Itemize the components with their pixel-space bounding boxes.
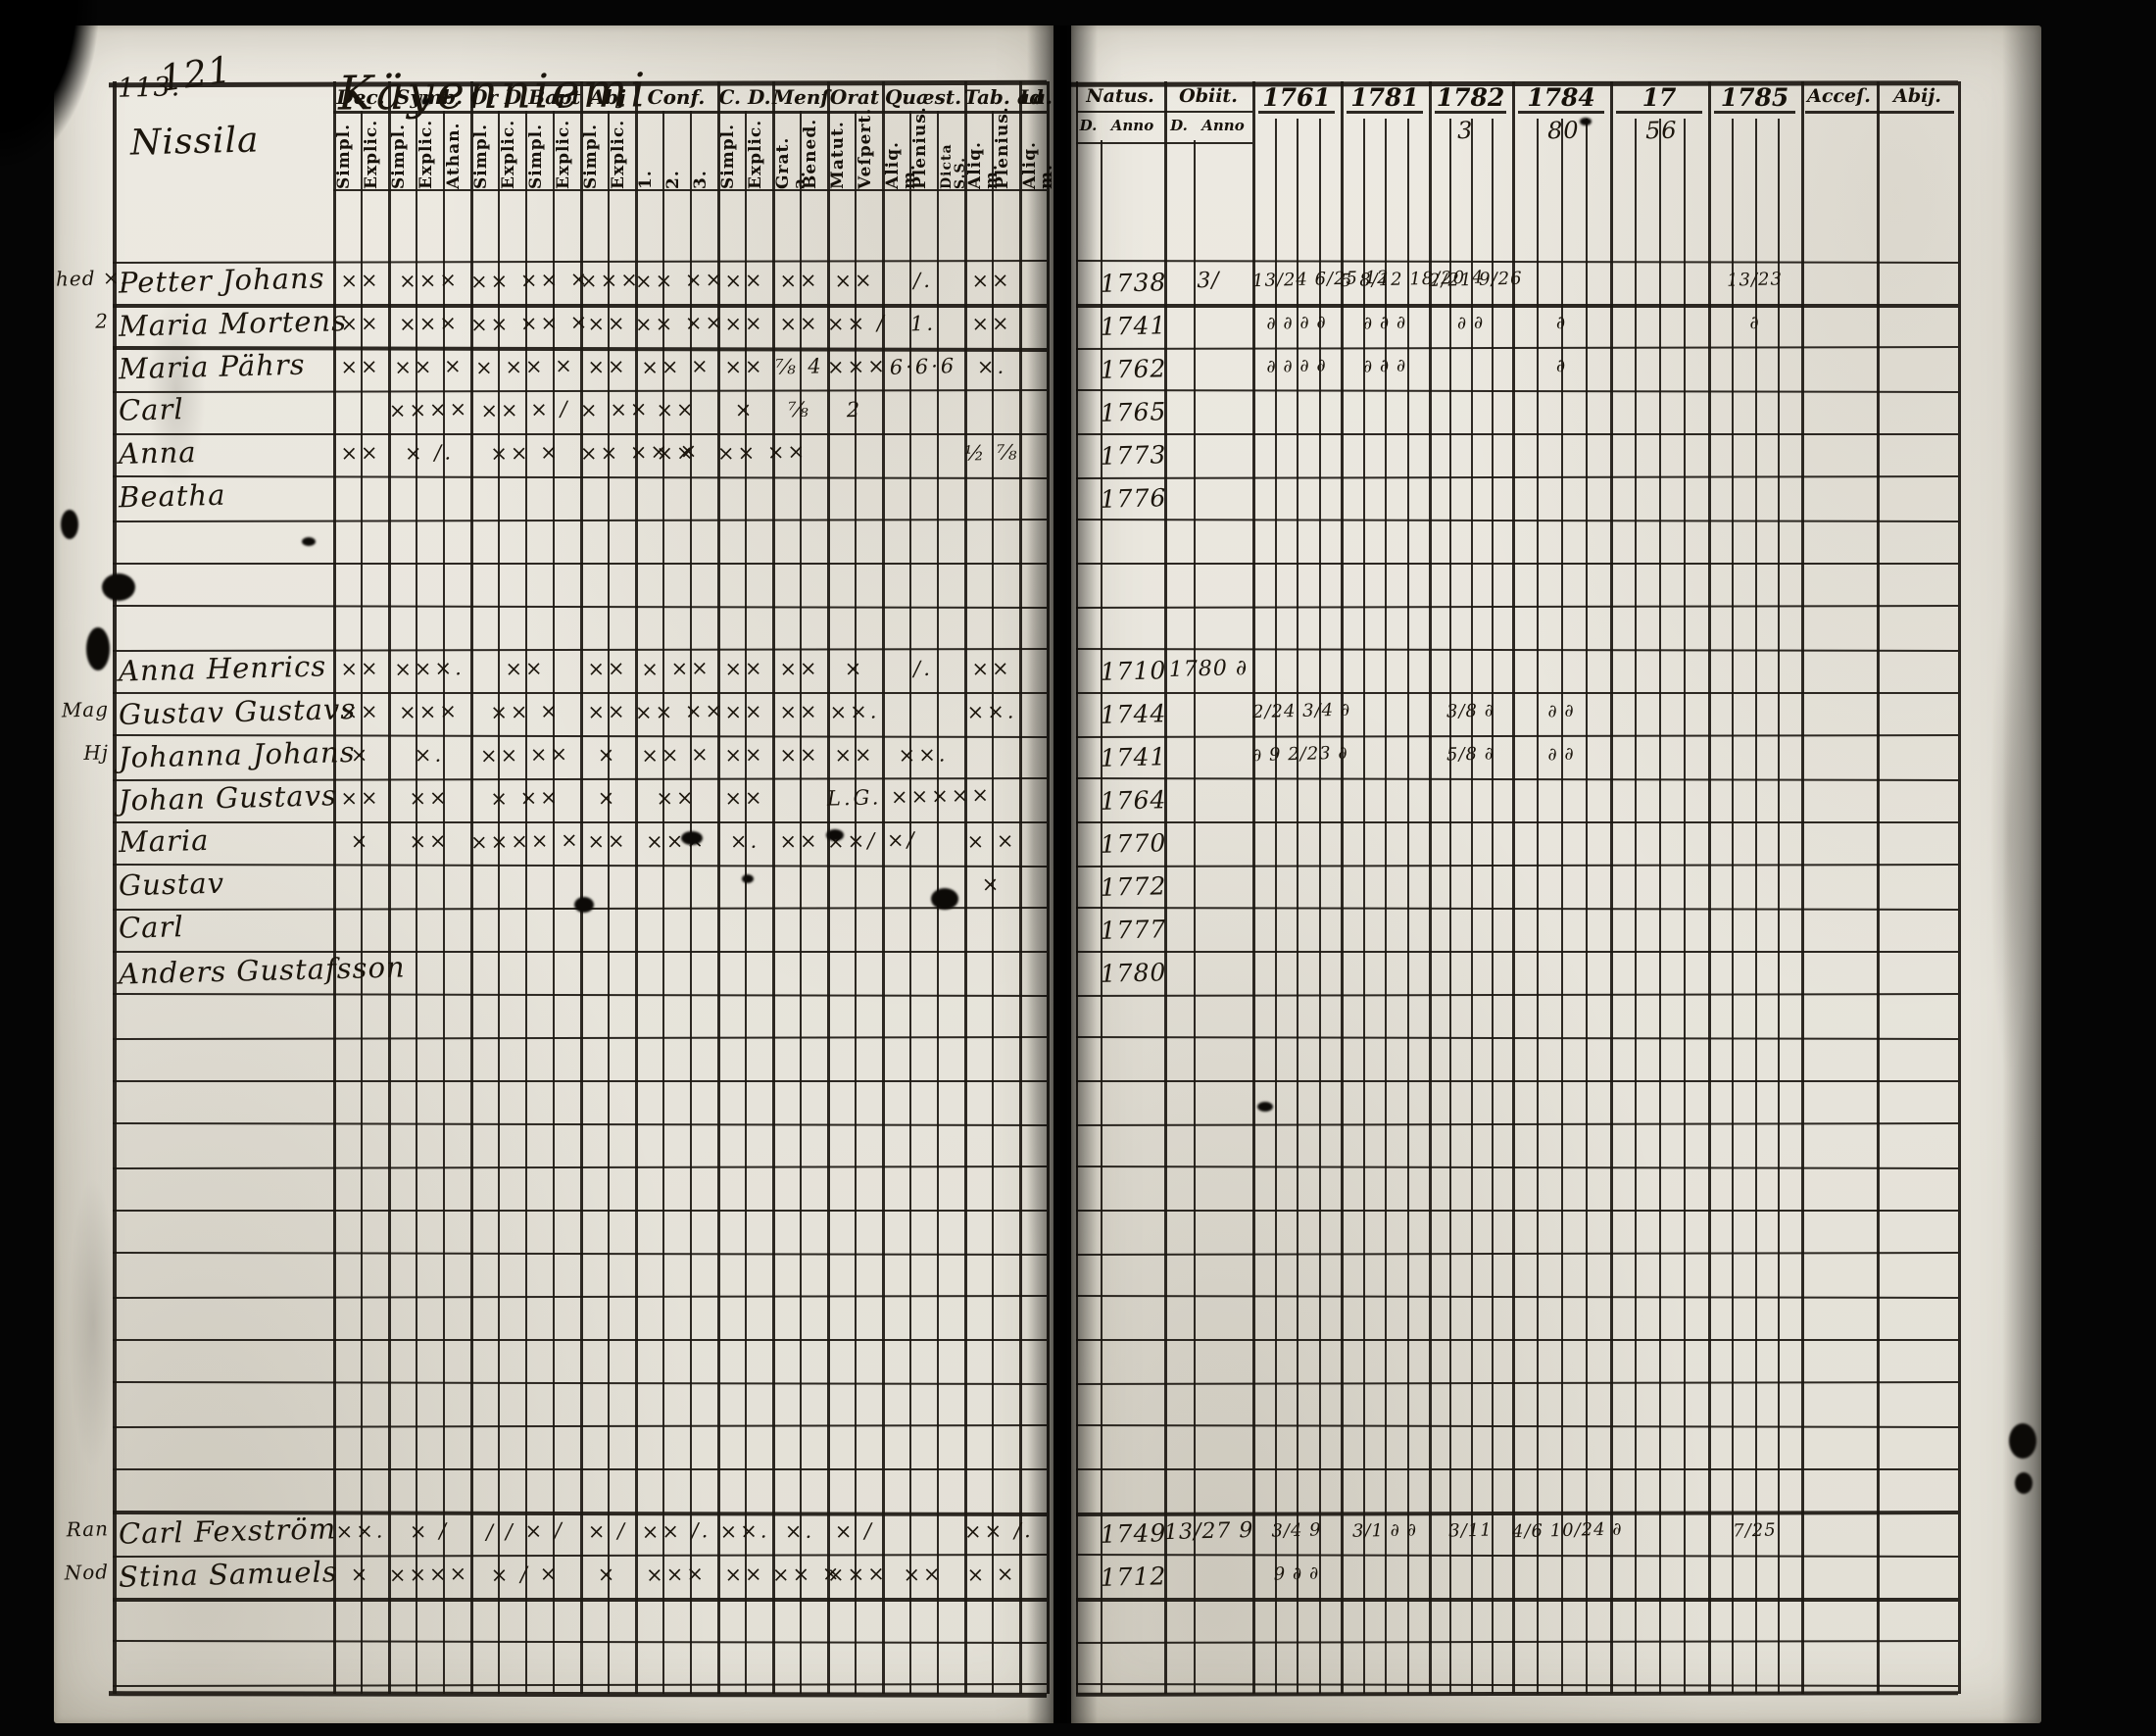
tally-marks: ×× ×× [635, 268, 718, 293]
left-page: 113. 121 Käyenniemi Nissila Dec.Simpl.Ex… [54, 25, 1053, 1723]
tally-marks: ××. [717, 1518, 773, 1543]
tally-marks: × ∕ × [470, 1562, 581, 1588]
communion-mark: ∂ ∂ ∂ ∂ [1252, 355, 1341, 377]
tally-marks: ×× [333, 354, 389, 378]
person-row-right: 174913/27 93/4 93/1 ∂ ∂3/114/6 10/24 ∂7/… [1071, 1512, 1958, 1555]
tally-marks: × [717, 397, 773, 422]
communion-mark: ∂ ∂ ∂ [1341, 355, 1429, 377]
year-annotation: 56 [1645, 117, 1678, 145]
communion-mark: 9 ∂ ∂ [1252, 1562, 1341, 1585]
tally-marks: × ∕. [388, 440, 471, 466]
paper-stain [1019, 392, 1049, 1274]
column-sub-label: Dicta S.S. [940, 115, 961, 189]
ink-blot [302, 537, 316, 546]
row-rule [1076, 1080, 1958, 1082]
person-name: Stina Samuels [119, 1555, 338, 1593]
tally-marks: ×× [717, 699, 773, 723]
day-anno-sub-label: D. [1164, 117, 1194, 134]
ink-blot [1257, 1102, 1273, 1112]
tally-marks: × [827, 656, 883, 680]
person-name: Maria [119, 823, 210, 859]
person-row: RanCarl Fexström××.× ∕∕ ∕ × ∕× ∕×× ∕.××.… [54, 1512, 1047, 1555]
column-sub-label: Simpl. [583, 115, 605, 189]
accessit-underline [1805, 111, 1954, 114]
column-sub-label: Plenius. [995, 115, 1016, 189]
tally-marks: ×× [717, 656, 773, 680]
tally-marks: ×× [772, 828, 828, 853]
natus-year: 1773 [1097, 440, 1171, 471]
column-sub-label: Aliq. m. [967, 115, 989, 189]
ink-blot [1580, 118, 1592, 125]
person-name: Carl Fexström [119, 1512, 337, 1550]
person-name: Gustav Gustavs [119, 692, 357, 731]
person-row: Maria××××××× ×××××××.××××∕ ×∕× × [54, 821, 1047, 865]
ink-blot [2009, 1423, 2036, 1459]
tally-marks: ×× [388, 828, 471, 854]
tally-marks: L.G. ××××× [827, 785, 883, 810]
person-name: Johan Gustavs [119, 778, 338, 817]
person-row: Johan Gustavs××××× ×××××××L.G. ××××× [54, 778, 1047, 821]
tally-marks: × [580, 742, 636, 767]
natus-year: 1762 [1097, 354, 1171, 384]
communion-mark: ∂ 9 2/23 ∂ [1252, 743, 1341, 766]
obiit-header: Obiit. [1164, 85, 1252, 107]
person-row-right: 17383∕13/24 6/25 125 8/12 18/20 42/21 9/… [1071, 261, 1958, 304]
year-column-label: 17 [1610, 83, 1708, 112]
day-anno-sub-label: Anno [1101, 117, 1164, 134]
tally-marks: ×× [580, 311, 636, 335]
tally-marks: ×× [580, 699, 636, 723]
person-row-right: 17129 ∂ ∂ [1071, 1555, 1958, 1598]
tally-marks: ∕ ∕ × ∕ [470, 1518, 581, 1545]
tally-marks: ×× [772, 656, 828, 680]
tally-marks: ××× [635, 1562, 718, 1587]
communion-mark: ∂ ∂ [1512, 700, 1610, 722]
column-group-label: Or D Bapt [470, 85, 580, 109]
row-rule [1076, 1166, 1958, 1169]
row-rule [1076, 1339, 1958, 1341]
tally-marks: ×× [717, 311, 773, 335]
person-row: MagGustav Gustavs××××××× ××××× ××××××××.… [54, 692, 1047, 735]
year-column-label: 1781 [1341, 83, 1429, 112]
row-rule [113, 1598, 1047, 1602]
tally-marks: ×× [717, 354, 773, 378]
natus-year: 1770 [1097, 828, 1171, 859]
tally-marks: ×× [333, 268, 389, 292]
column-sub-label: Matut. [830, 115, 852, 189]
tally-marks: ×× ∕ [827, 311, 883, 335]
natus-year: 1780 [1097, 958, 1171, 988]
row-rule [1076, 1424, 1958, 1428]
tally-marks: 6·6·6 [882, 354, 965, 379]
tally-marks: ×× × [772, 1562, 828, 1586]
column-sub-label: Explic. [748, 115, 769, 189]
margin-note: 2 [56, 309, 110, 333]
margin-note: hed ×. [56, 266, 110, 290]
row-rule [113, 1468, 1047, 1470]
year-column-label: 1782 [1429, 83, 1512, 112]
ink-blot [574, 897, 594, 913]
obiit-entry: 1780 ∂ [1164, 656, 1253, 682]
year-underline [1518, 111, 1604, 114]
column-group-label: C. D. [717, 85, 772, 109]
tally-marks: ×× [388, 785, 471, 811]
scan-corner-shadow [0, 0, 98, 167]
folio-number: 121 [157, 48, 234, 100]
tally-marks: ⅞ 4 [772, 354, 828, 378]
tally-marks: ×× [333, 785, 389, 810]
tally-marks: ×× [717, 742, 773, 767]
tally-marks: ××× [827, 354, 883, 378]
natus-year: 1741 [1097, 742, 1171, 772]
tally-marks: × [333, 742, 389, 767]
natus-year: 1749 [1097, 1518, 1171, 1549]
tally-marks: ×× ×× × [470, 268, 581, 294]
tally-marks: ×× [580, 354, 636, 378]
tally-marks: × × [964, 828, 1020, 853]
person-row: Carl [54, 908, 1047, 951]
year-column-label: 1761 [1252, 83, 1341, 112]
header-mid-rule [1076, 111, 1252, 113]
column-sub-label: Explic. [611, 115, 632, 189]
column-sub-label: Grat. a. [775, 115, 797, 189]
tally-marks: ×× [580, 656, 636, 680]
row-rule [1076, 1252, 1958, 1256]
tally-marks: ½ ⅞ [964, 440, 1020, 465]
tally-marks: ×××. [388, 656, 471, 681]
ink-blot [742, 874, 754, 883]
ink-blot [2015, 1472, 2033, 1494]
village-name: Nissila [130, 120, 260, 163]
communion-mark: 13/23 [1708, 269, 1801, 291]
person-row: NodStina Samuels×××××× ∕ ××××××××× ×××××… [54, 1555, 1047, 1598]
row-rule [1076, 1210, 1958, 1212]
tally-marks: ×× × [470, 440, 581, 467]
row-rule [1076, 1381, 1958, 1385]
natus-year: 1764 [1097, 785, 1171, 816]
tally-marks: ×. [717, 828, 773, 853]
natus-year: 1772 [1097, 871, 1171, 902]
column-sub-label: Simpl. [391, 115, 413, 189]
column-sub-label: Explic. [501, 115, 522, 189]
tally-marks: ×× ×× [635, 699, 718, 724]
row-rule [113, 1080, 1047, 1082]
tally-marks: ×× × ∕ [470, 397, 581, 423]
tally-marks: ×× × [635, 742, 718, 768]
obiit-entry: 3∕ [1164, 268, 1253, 294]
tally-marks: ×× × [470, 699, 581, 725]
tally-marks: 1. [882, 311, 965, 336]
communion-mark: 3/11 [1429, 1519, 1512, 1542]
tally-marks: ×. [772, 1518, 828, 1543]
communion-mark: 3/1 ∂ ∂ [1341, 1519, 1429, 1542]
tally-marks: ×× [717, 785, 773, 810]
natus-year: 1744 [1097, 699, 1171, 729]
tally-marks: ×× ×× [635, 311, 718, 336]
tally-marks: ×× [964, 268, 1020, 292]
paper-stain [1989, 588, 2029, 1078]
header-bottom-rule [1076, 142, 1252, 144]
person-row-right: 1765 [1071, 390, 1958, 433]
tally-marks: ×× [772, 311, 828, 335]
tally-marks: ×× [964, 311, 1020, 335]
scanned-book-spread: 113. 121 Käyenniemi Nissila Dec.Simpl.Ex… [0, 0, 2156, 1736]
communion-mark: 7/25 [1708, 1519, 1801, 1542]
person-row-right: 1764 [1071, 778, 1958, 821]
year-annotation: 80 [1547, 117, 1580, 145]
column-group-label: Abj [580, 85, 635, 109]
tally-marks: ×× [333, 440, 389, 465]
paper-stain [69, 1176, 118, 1470]
natus-year: 1710 [1097, 656, 1171, 686]
tally-marks: ××. [882, 742, 965, 768]
column-sub-label: Explic. [364, 115, 385, 189]
tally-marks: × [580, 785, 636, 810]
row-rule [1076, 605, 1958, 609]
tally-marks: ×× ×× [717, 440, 773, 465]
tally-marks: × ×× [580, 397, 636, 422]
communion-mark: ∂ ∂ [1512, 743, 1610, 766]
tally-marks: × [580, 1562, 636, 1586]
person-row-right: 1772 [1071, 865, 1958, 908]
tally-marks: ×× [772, 268, 828, 292]
natus-year: 1738 [1097, 268, 1171, 298]
year-underline [1616, 111, 1702, 114]
tally-marks: ×. [388, 742, 471, 768]
year-column-label: 1784 [1512, 83, 1610, 112]
column-group-label: Dec. [333, 85, 388, 109]
person-row-right: 17101780 ∂ [1071, 649, 1958, 692]
tally-marks: ××× [580, 268, 636, 292]
column-group-label: Symb. [388, 85, 470, 109]
person-name: Carl [119, 910, 184, 945]
communion-mark: ∂ [1708, 312, 1801, 334]
ink-blot [421, 98, 431, 105]
column-sub-label: Simpl. [336, 115, 358, 189]
column-group-label: Orat [827, 85, 882, 109]
margin-note: Nod [56, 1560, 110, 1584]
tally-marks: ××. [827, 699, 883, 723]
margin-note: Hj [56, 740, 110, 765]
day-anno-sub-label: Anno [1194, 117, 1252, 134]
person-row-right: 1776 [1071, 476, 1958, 520]
person-row: HjJohanna Johans××.×× ××××× ×××××××××. [54, 735, 1047, 778]
column-sub-label: Explic. [418, 115, 440, 189]
obiit-entry: 13/27 9 [1164, 1518, 1253, 1545]
ink-blot [102, 573, 135, 601]
accessit-header: Acceſ. [1801, 85, 1877, 107]
tally-marks: ××× [388, 268, 471, 293]
communion-mark: ∂ ∂ [1429, 312, 1512, 334]
ink-blot [61, 510, 78, 539]
tally-marks: ×× × [635, 354, 718, 379]
tally-marks: × ×× [470, 785, 581, 812]
tally-marks: ×× [827, 268, 883, 292]
tally-marks: ×. [964, 354, 1020, 378]
person-row-right: 17442/24 3/4 ∂3/8 ∂∂ ∂ [1071, 692, 1958, 735]
tally-marks: × ×× × [470, 354, 581, 380]
person-row: Anna Henrics×××××.××××× ×××××××∕.×× [54, 649, 1047, 692]
communion-mark: ∂ ∂ ∂ ∂ [1252, 312, 1341, 334]
year-underline [1347, 111, 1423, 114]
person-row-right: 1741∂ 9 2/23 ∂5/8 ∂∂ ∂ [1071, 735, 1958, 778]
table-right-frame [1958, 81, 1961, 1694]
tally-marks: ×× [772, 699, 828, 723]
person-row-right: 1770 [1071, 821, 1958, 865]
tally-marks: ××× [388, 699, 471, 724]
tally-marks: ×× [635, 785, 718, 811]
tally-marks: ∕. [882, 268, 965, 293]
column-sub-label: 1. [638, 115, 660, 189]
tally-marks: ×× [333, 699, 389, 723]
natus-year: 1765 [1097, 397, 1171, 427]
column-sub-label: Aliq. m. [885, 115, 906, 189]
tally-marks: ×× ×× [470, 742, 581, 769]
year-underline [1714, 111, 1795, 114]
abiit-header: Abij. [1877, 85, 1958, 107]
tally-marks: × [333, 828, 389, 853]
tally-marks: ×× ∕. [635, 1518, 718, 1544]
row-rule [1076, 1598, 1958, 1602]
tally-marks: ×× [635, 397, 718, 422]
tally-marks: × ∕ [388, 1518, 471, 1544]
tally-marks: ××. [333, 1518, 389, 1543]
margin-note: Mag [56, 697, 110, 721]
table-bottom-rule [109, 1691, 1047, 1698]
column-sub-label: Veſpert. [857, 115, 879, 189]
column-sub-label: Athan. [446, 115, 467, 189]
ink-blot [681, 831, 703, 845]
natus-year: 1777 [1097, 915, 1171, 945]
tally-marks: ×× ×× × [580, 440, 636, 465]
tally-marks: × ×× [635, 656, 718, 681]
tally-marks: ×× × [388, 354, 471, 379]
tally-marks: ×× [333, 311, 389, 335]
communion-mark: 5 8/12 18/20 4 [1341, 269, 1429, 291]
tally-marks: ×× [827, 742, 883, 767]
tally-marks: ××× [827, 1562, 883, 1586]
ink-blot [86, 627, 110, 670]
communion-mark: 5/8 ∂ [1429, 743, 1512, 766]
communion-mark: 13/24 6/25 12 [1252, 269, 1341, 291]
natus-year: 1712 [1097, 1562, 1171, 1592]
person-name: Gustav [119, 867, 225, 903]
column-group-label: Menſ [772, 85, 827, 109]
person-row-right: 1780 [1071, 951, 1958, 994]
communion-mark: ∂ ∂ ∂ [1341, 312, 1429, 334]
tally-marks: × × [964, 1562, 1020, 1586]
column-sub-label: Simpl. [473, 115, 495, 189]
tally-marks: ×× [882, 1562, 965, 1587]
tally-marks: ×× [470, 656, 581, 682]
tally-marks: × [964, 871, 1020, 896]
communion-mark: 2/24 3/4 ∂ [1252, 700, 1341, 722]
natus-year: 1741 [1097, 311, 1171, 341]
tally-marks: ×× [580, 828, 636, 853]
tally-marks: × ∕ [580, 1518, 636, 1543]
tally-marks: ××. [964, 699, 1020, 723]
person-row-right: 1777 [1071, 908, 1958, 951]
row-rule [1076, 1683, 1958, 1687]
tally-marks: ×× [717, 268, 773, 292]
column-sub-label: Bened. [803, 115, 824, 189]
person-row: Gustav× [54, 865, 1047, 908]
year-underline [1258, 111, 1335, 114]
row-rule [1076, 1295, 1958, 1299]
row-rule [1076, 1036, 1958, 1040]
ink-blot [826, 829, 844, 841]
tally-marks: ×× [717, 1562, 773, 1586]
tally-marks: ×× [772, 742, 828, 767]
row-rule [113, 563, 1047, 565]
tally-marks: ×× [635, 440, 718, 466]
row-rule [1076, 1640, 1958, 1644]
person-row-right: 1762∂ ∂ ∂ ∂∂ ∂ ∂∂ [1071, 347, 1958, 390]
person-row-right: 1773 [1071, 433, 1958, 476]
column-sub-label: Simpl. [720, 115, 742, 189]
ink-blot [931, 888, 958, 910]
column-sub-label: Simpl. [528, 115, 550, 189]
right-page: Natus.Obiit.D.AnnoD.Anno1761178117823178… [1071, 25, 2041, 1723]
tally-marks: ×× ×× × [470, 311, 581, 337]
person-name: Johanna Johans [119, 735, 356, 774]
person-row-right: 1741∂ ∂ ∂ ∂∂ ∂ ∂∂ ∂∂∂ [1071, 304, 1958, 347]
row-rule [1076, 563, 1958, 565]
communion-mark: 4/6 10/24 ∂ [1512, 1519, 1610, 1542]
tally-marks: ×××× [388, 397, 471, 422]
communion-mark: ∂ [1512, 355, 1610, 377]
natus-year: 1776 [1097, 483, 1171, 514]
tally-marks: ×× [333, 656, 389, 680]
communion-mark: 3/4 9 [1252, 1519, 1341, 1542]
tally-marks: ××× [388, 311, 471, 336]
person-row: Anders Gustafsson [54, 951, 1047, 994]
table-bottom-rule [1076, 1691, 1958, 1697]
communion-mark: 3/8 ∂ [1429, 700, 1512, 722]
communion-mark: 2/21 9/26 [1429, 269, 1512, 291]
tally-marks: × [333, 1562, 389, 1586]
tally-marks: 2 [827, 397, 883, 422]
tally-marks: ×××× [388, 1562, 471, 1587]
tally-marks: ×× ∕. [964, 1518, 1020, 1543]
column-sub-label: Explic. [556, 115, 577, 189]
year-underline [1435, 111, 1506, 114]
row-rule [113, 1210, 1047, 1212]
margin-note: Ran [56, 1516, 110, 1541]
column-sub-label: 3. [693, 115, 714, 189]
tally-marks: ××× [635, 828, 718, 854]
column-sub-label: Plenius. [912, 115, 934, 189]
row-rule [113, 1339, 1047, 1341]
row-rule [1076, 1468, 1958, 1470]
tally-marks: × ∕ [827, 1518, 883, 1543]
person-name: Anders Gustafsson [119, 950, 406, 990]
tally-marks: ∕. [882, 656, 965, 681]
column-group-label: Conf. [635, 85, 717, 109]
communion-mark: ∂ [1512, 312, 1610, 334]
row-rule [1076, 1122, 1958, 1126]
paper-stain [147, 294, 206, 490]
tally-marks: ×× [964, 656, 1020, 680]
tally-marks: ×××× × [470, 828, 581, 855]
tally-marks: ⅞ [772, 397, 828, 422]
year-column-label: 1785 [1708, 83, 1801, 112]
column-sub-label: 2. [665, 115, 687, 189]
person-name: Anna Henrics [119, 649, 327, 687]
